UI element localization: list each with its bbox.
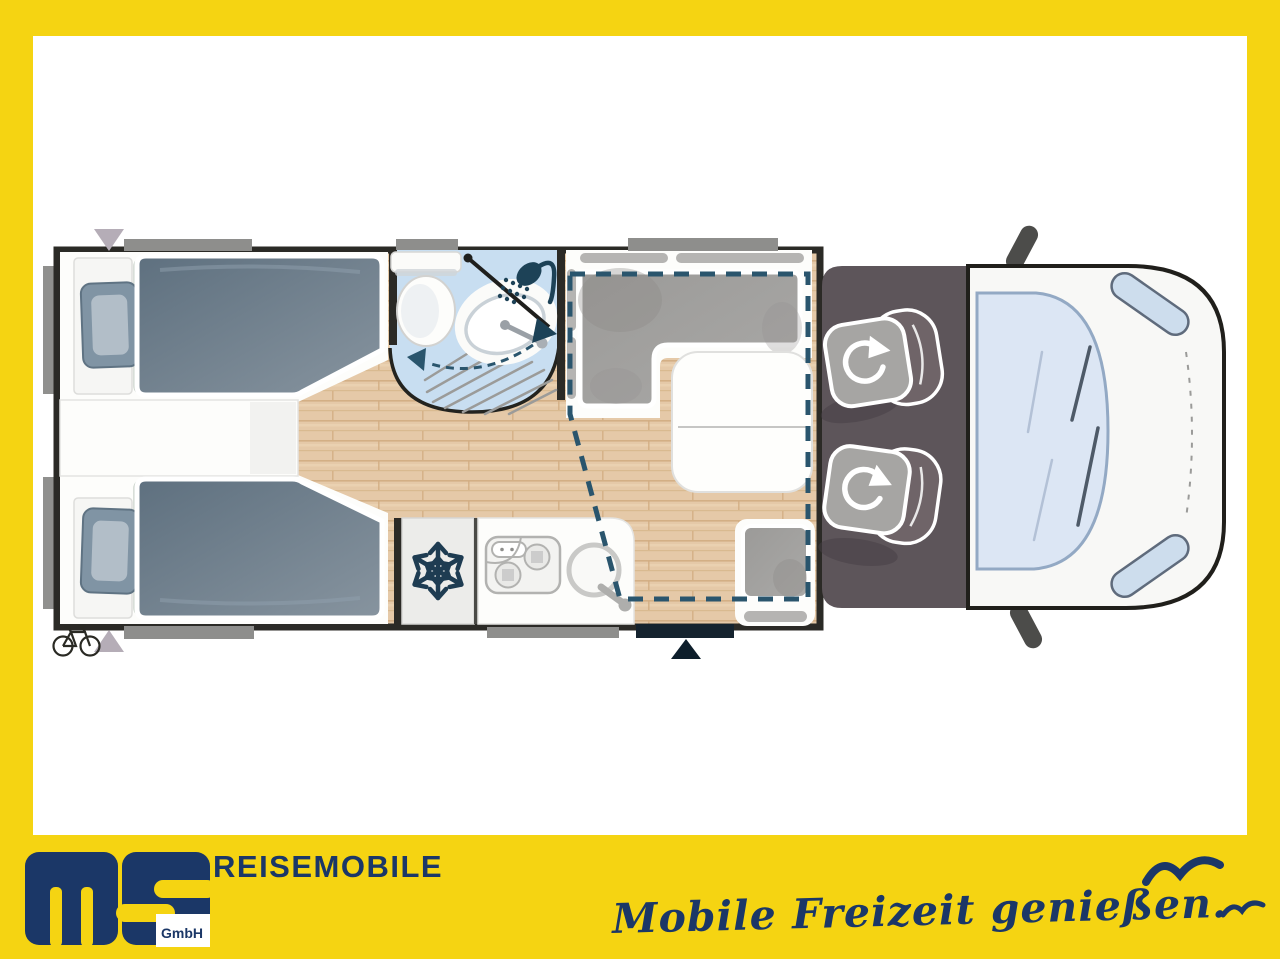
hob-icon [486,537,560,593]
seagull-icons [1138,842,1278,937]
vehicle-front [968,223,1224,652]
sofa-headrest-2 [676,253,804,263]
window-top-bathroom [396,239,458,250]
window-top-bedroom [124,239,252,251]
window-bottom-bedroom [124,626,254,639]
wordmark: REISEMOBILE [213,849,443,885]
kitchen-wall-left [394,518,402,625]
ms-logo: GmbH [25,851,213,947]
window-bottom-kitchen [487,627,619,638]
floorplan-diagram [0,0,1280,959]
bathroom-wall-right [557,250,565,400]
seagull-icon [1146,860,1220,882]
bathroom [389,250,568,414]
chest-front [250,402,296,474]
entry-door [636,624,734,638]
seagull-icon [1223,903,1263,915]
driver-cab [817,266,968,608]
kitchen [394,518,634,625]
sofa-headrest-1 [580,253,668,263]
entry-triangle-icon [671,639,701,659]
pillow-top [81,282,140,368]
pillow-bottom [81,508,140,594]
dealer-floorplan-page: GmbH REISEMOBILE Mobile Freizeit genieße… [0,0,1280,959]
windshield [977,293,1108,569]
logo-gmbh-label: GmbH [161,925,203,941]
side-seat [735,519,815,626]
window-top-lounge [628,238,778,251]
dinette-table [672,352,812,492]
